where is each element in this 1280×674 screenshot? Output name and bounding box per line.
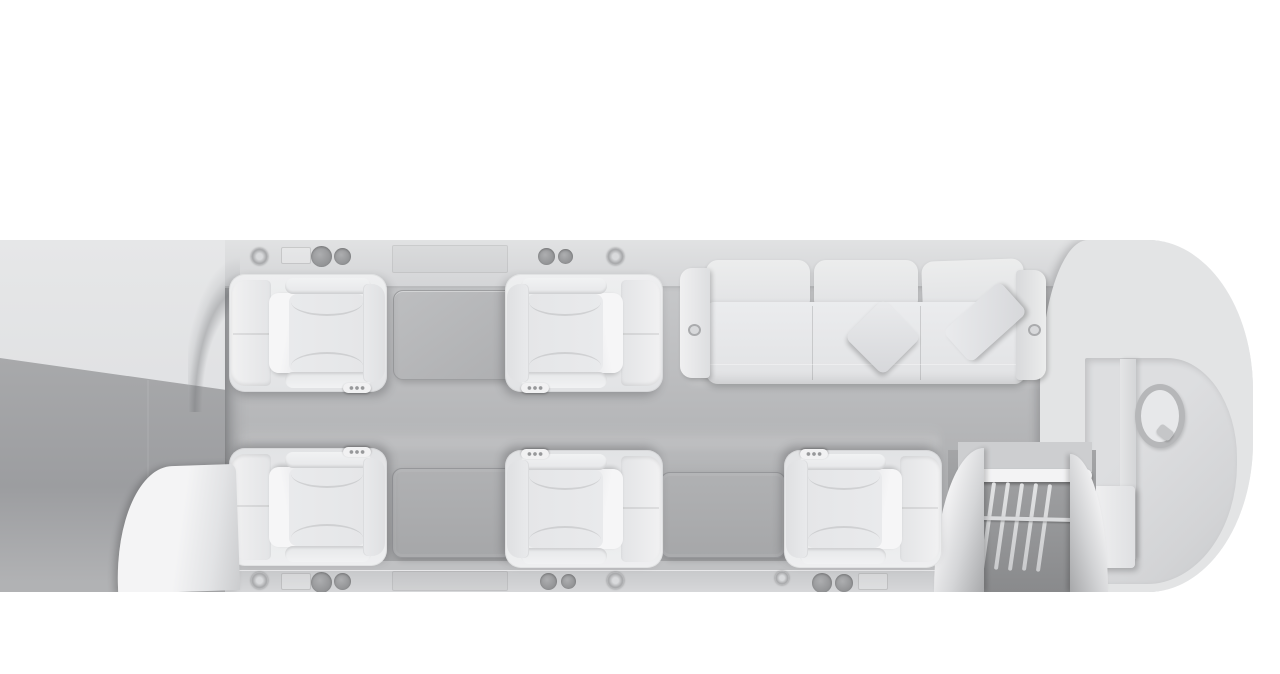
seat-control-panel xyxy=(343,383,371,393)
ceiling-panel-recess xyxy=(392,571,508,591)
seat-footrest xyxy=(363,458,385,556)
render-canvas xyxy=(0,0,1280,674)
speaker-icon xyxy=(311,572,332,592)
speaker-icon xyxy=(334,573,351,590)
trim-plate xyxy=(858,573,888,590)
sofa-cushion-seam xyxy=(920,306,921,380)
speaker-icon xyxy=(561,574,576,589)
sofa-cushion-seam xyxy=(812,306,813,380)
seat-bolster-seam xyxy=(291,460,363,488)
trim-plate xyxy=(281,573,311,590)
seat-bolster-seam xyxy=(529,352,601,380)
seat-bolster-seam xyxy=(808,462,880,490)
seat-bolster-seam xyxy=(291,288,363,316)
speaker-icon xyxy=(812,573,832,592)
seat-control-panel xyxy=(800,449,828,459)
club-seat-4 xyxy=(505,450,663,568)
trim-plate xyxy=(281,247,311,264)
ceiling-panel-recess xyxy=(392,245,508,273)
lower-wall-band xyxy=(225,570,940,592)
sofa-back-cushion xyxy=(814,260,918,306)
seat-control-panel xyxy=(521,449,549,459)
rosette-icon xyxy=(607,248,624,265)
seatbelt-buckle-icon xyxy=(688,324,701,336)
speaker-icon xyxy=(311,246,332,267)
seat-bolster-seam xyxy=(291,352,363,380)
rosette-icon xyxy=(607,572,624,589)
toilet-fixture xyxy=(1135,384,1185,448)
seat-footrest xyxy=(786,460,808,558)
seat-bolster-seam xyxy=(529,526,601,554)
seat-control-panel xyxy=(521,383,549,393)
seat-control-panel xyxy=(343,447,371,457)
table-bottom-row xyxy=(392,468,514,558)
club-seat-2 xyxy=(505,274,663,392)
seat-backrest xyxy=(621,456,661,562)
seat-footrest xyxy=(507,284,529,382)
seat-bolster-seam xyxy=(529,288,601,316)
seat-backrest xyxy=(900,456,940,562)
club-seat-5 xyxy=(784,450,942,568)
credenza-table xyxy=(660,472,786,558)
sofa-armrest xyxy=(680,268,710,378)
seat-bolster-seam xyxy=(529,462,601,490)
seat-backrest xyxy=(621,280,661,386)
club-seat-1 xyxy=(229,274,387,392)
sofa-front-seam xyxy=(708,364,1024,365)
divan-sofa xyxy=(680,260,1046,384)
seat-backrest xyxy=(231,280,271,386)
speaker-icon xyxy=(835,574,853,592)
speaker-icon xyxy=(540,573,557,590)
conference-table xyxy=(393,290,515,380)
rosette-icon xyxy=(251,572,268,589)
rosette-icon xyxy=(775,571,789,585)
seat-bolster-seam xyxy=(808,526,880,554)
seat-footrest xyxy=(363,284,385,382)
speaker-icon xyxy=(538,248,555,265)
rosette-icon xyxy=(251,248,268,265)
seat-bolster-seam xyxy=(291,524,363,552)
seat-footrest xyxy=(507,460,529,558)
club-seat-3 xyxy=(229,448,387,566)
sofa-back-cushion xyxy=(706,260,810,306)
fuselage-cutaway xyxy=(0,240,1253,592)
seatbelt-buckle-icon xyxy=(1028,324,1041,336)
speaker-icon xyxy=(334,248,351,265)
speaker-icon xyxy=(558,249,573,264)
